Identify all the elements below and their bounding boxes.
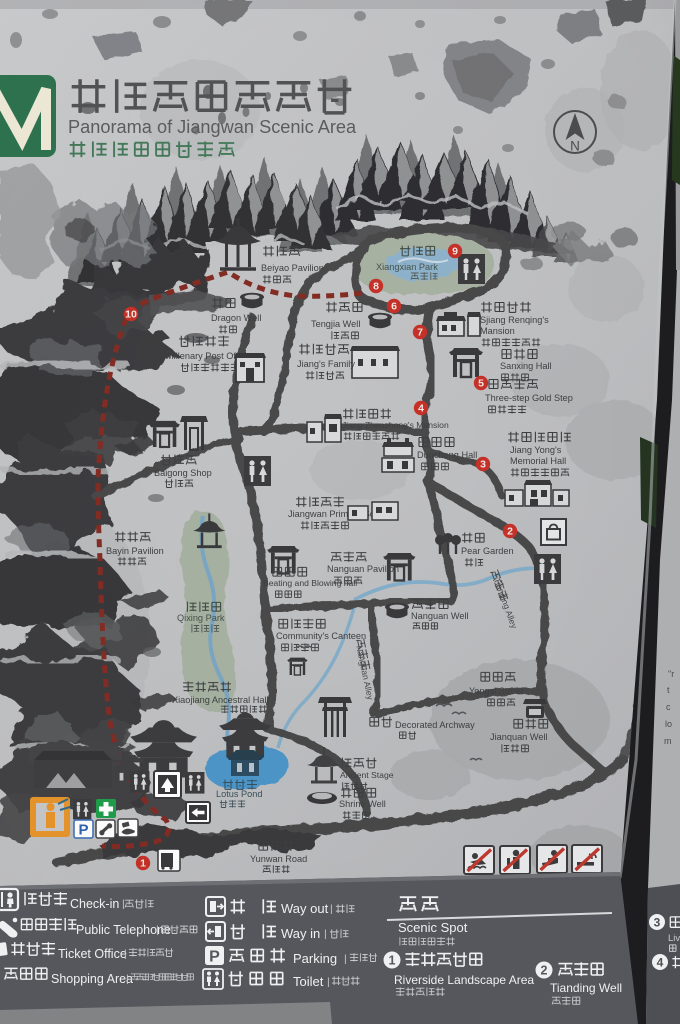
svg-text:Xiaojiang Ancestral Hall: Xiaojiang Ancestral Hall [172,695,269,705]
svg-text:Toilet: Toilet [293,974,324,989]
svg-text:9: 9 [452,246,458,258]
svg-text:Dragon Well: Dragon Well [211,313,261,323]
svg-text:1: 1 [140,858,146,870]
svg-text:m: m [664,736,672,746]
svg-text:|: | [126,973,129,985]
svg-text:Yongsi Street: Yongsi Street [469,686,524,696]
svg-text:Shopping Area: Shopping Area [51,972,133,986]
svg-text:Beating and Blowing hall: Beating and Blowing hall [263,578,357,588]
svg-text:Baigong Shop: Baigong Shop [154,468,212,478]
svg-text:|: | [324,928,327,940]
svg-text:P: P [209,949,220,966]
svg-text:Sanxing Hall: Sanxing Hall [500,361,552,371]
svg-text:Riverside Landscape Area: Riverside Landscape Area [394,973,534,987]
svg-text:1: 1 [389,954,396,968]
svg-text:5: 5 [478,378,484,390]
svg-text:4: 4 [418,403,424,415]
svg-text:Shrine Well: Shrine Well [339,799,386,809]
svg-text:7: 7 [417,327,423,339]
svg-text:Yunwan Road: Yunwan Road [250,854,307,864]
svg-text:Community's Canteen: Community's Canteen [276,631,366,641]
svg-text:2: 2 [507,526,513,538]
svg-text:2: 2 [541,964,548,978]
svg-text:Sjiang Renqing's: Sjiang Renqing's [480,315,549,325]
svg-text:|: | [124,948,127,960]
svg-text:3: 3 [654,916,661,930]
svg-text:"r: "r [668,669,674,679]
svg-text:lo: lo [665,719,672,729]
svg-text:c: c [666,702,671,712]
svg-text:|: | [327,976,330,988]
svg-text:|: | [122,898,125,910]
svg-text:Three-step Gold Step: Three-step Gold Step [485,393,573,403]
svg-text:Jiang's Family: Jiang's Family [297,359,355,369]
svg-text:10: 10 [125,309,137,321]
svg-text:Decorated Archway: Decorated Archway [395,720,475,730]
svg-text:Way out: Way out [281,901,329,916]
svg-text:Way in: Way in [281,926,320,941]
svg-text:Pear Garden: Pear Garden [461,546,514,556]
svg-text:Tianding Well: Tianding Well [550,981,622,995]
svg-text:Nanguan Pavilion: Nanguan Pavilion [327,564,399,574]
svg-text:Xiangxian Park: Xiangxian Park [376,262,438,272]
svg-text:Beiyao Pavilion: Beiyao Pavilion [261,263,324,273]
svg-text:Mansion: Mansion [480,326,515,336]
svg-text:Scenic Spot: Scenic Spot [398,920,468,935]
svg-text:Jiang Zhenzhong's Mansion: Jiang Zhenzhong's Mansion [342,420,449,430]
svg-text:Liv: Liv [668,933,680,944]
svg-text:8: 8 [373,281,379,293]
svg-text:Jianquan Well: Jianquan Well [490,732,548,742]
svg-text:Bayin Pavilion: Bayin Pavilion [106,546,164,556]
svg-text:Check-in: Check-in [70,897,119,911]
svg-text:4: 4 [657,956,664,970]
svg-text:Qixing Park: Qixing Park [177,613,225,623]
svg-text:Lotus Pond: Lotus Pond [216,789,263,799]
svg-text:|: | [344,953,347,965]
svg-text:P: P [78,822,88,839]
svg-text:Memorial Hall: Memorial Hall [510,456,566,466]
svg-text:|: | [156,924,159,936]
svg-text:Ticket Office: Ticket Office [58,947,127,961]
svg-text:Parking: Parking [293,951,337,966]
svg-text:Ancient Stage: Ancient Stage [340,770,394,780]
svg-text:Nanguan Well: Nanguan Well [411,611,469,621]
svg-text:Panorama of Jiangwan Scenic Ar: Panorama of Jiangwan Scenic Area [68,117,357,137]
svg-text:Jiang Yong's: Jiang Yong's [510,445,562,455]
svg-text:|: | [330,903,333,915]
svg-text:3: 3 [480,459,486,471]
svg-text:N: N [570,139,580,154]
svg-text:Tengjia Well: Tengjia Well [311,319,360,329]
svg-text:Dunchong Hall: Dunchong Hall [417,450,477,460]
svg-text:6: 6 [391,301,397,313]
